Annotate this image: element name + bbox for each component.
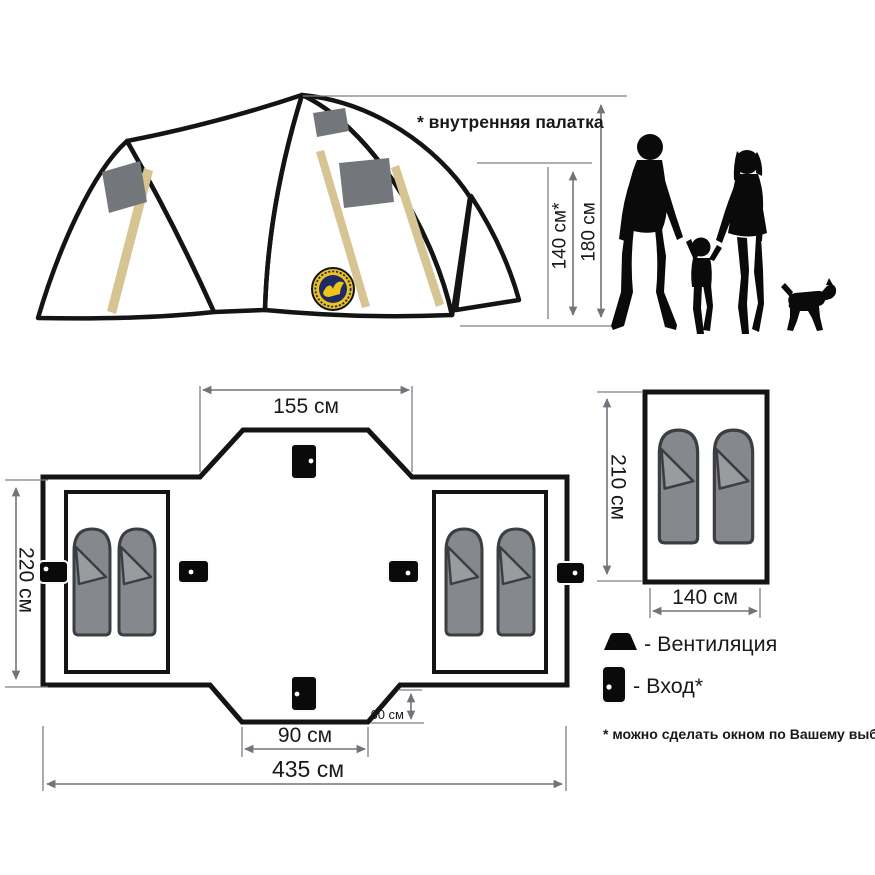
dog-silhouette <box>781 278 836 331</box>
inner-tent-width-label: 140 см <box>672 586 738 609</box>
entrance-door-center-right <box>388 560 419 583</box>
sleeping-bag <box>74 529 110 635</box>
brand-logo <box>312 268 354 310</box>
ventilation-label: - Вентиляция <box>644 632 777 656</box>
inner-tent-diagram: 210 см 140 см <box>597 392 767 618</box>
entrance-width-label: 90 см <box>278 724 332 747</box>
sleeping-bag <box>498 529 534 635</box>
entrance-door-far-left <box>39 561 68 583</box>
floor-plan: 155 см 220 см 90 см 60 см 435 см <box>5 386 585 791</box>
entrance-door-center-left <box>178 560 209 583</box>
entrance-door-far-right <box>556 562 585 584</box>
tent-window <box>313 108 349 137</box>
top-width-label: 155 см <box>273 395 339 418</box>
tent-window <box>339 158 394 208</box>
sleeping-bag <box>119 529 155 635</box>
depth-label: 220 см <box>15 547 38 613</box>
inner-tent-length-label: 210 см <box>607 454 630 520</box>
family-silhouette <box>611 134 836 334</box>
child-silhouette <box>686 238 722 335</box>
entrance-label: - Вход* <box>633 674 704 698</box>
door-icon <box>602 666 626 703</box>
diagram-canvas: 140 см* 180 см * внутренняя палатка <box>0 0 875 875</box>
ventilation-icon <box>604 633 637 650</box>
outer-height-label: 180 см <box>579 202 600 262</box>
legend: - Вентиляция - Вход* * можно сделать окн… <box>602 632 875 742</box>
entrance-door-bottom <box>291 676 317 711</box>
tent-seam-stripe <box>391 165 444 307</box>
woman-silhouette <box>716 150 767 334</box>
sleeping-bag <box>659 430 697 543</box>
sleeping-bag <box>446 529 482 635</box>
man-silhouette <box>611 134 683 330</box>
tent-spec-diagram: 140 см* 180 см * внутренняя палатка <box>0 0 875 875</box>
inner-tent-annotation: * внутренняя палатка <box>417 112 604 132</box>
total-width-label: 435 см <box>272 756 344 782</box>
inner-height-label: 140 см* <box>550 202 571 270</box>
porch-depth-label: 60 см <box>370 707 404 722</box>
legend-footnote: * можно сделать окном по Вашему выбору <box>603 726 875 742</box>
entrance-door-top <box>291 444 317 479</box>
sleeping-bag <box>714 430 752 543</box>
